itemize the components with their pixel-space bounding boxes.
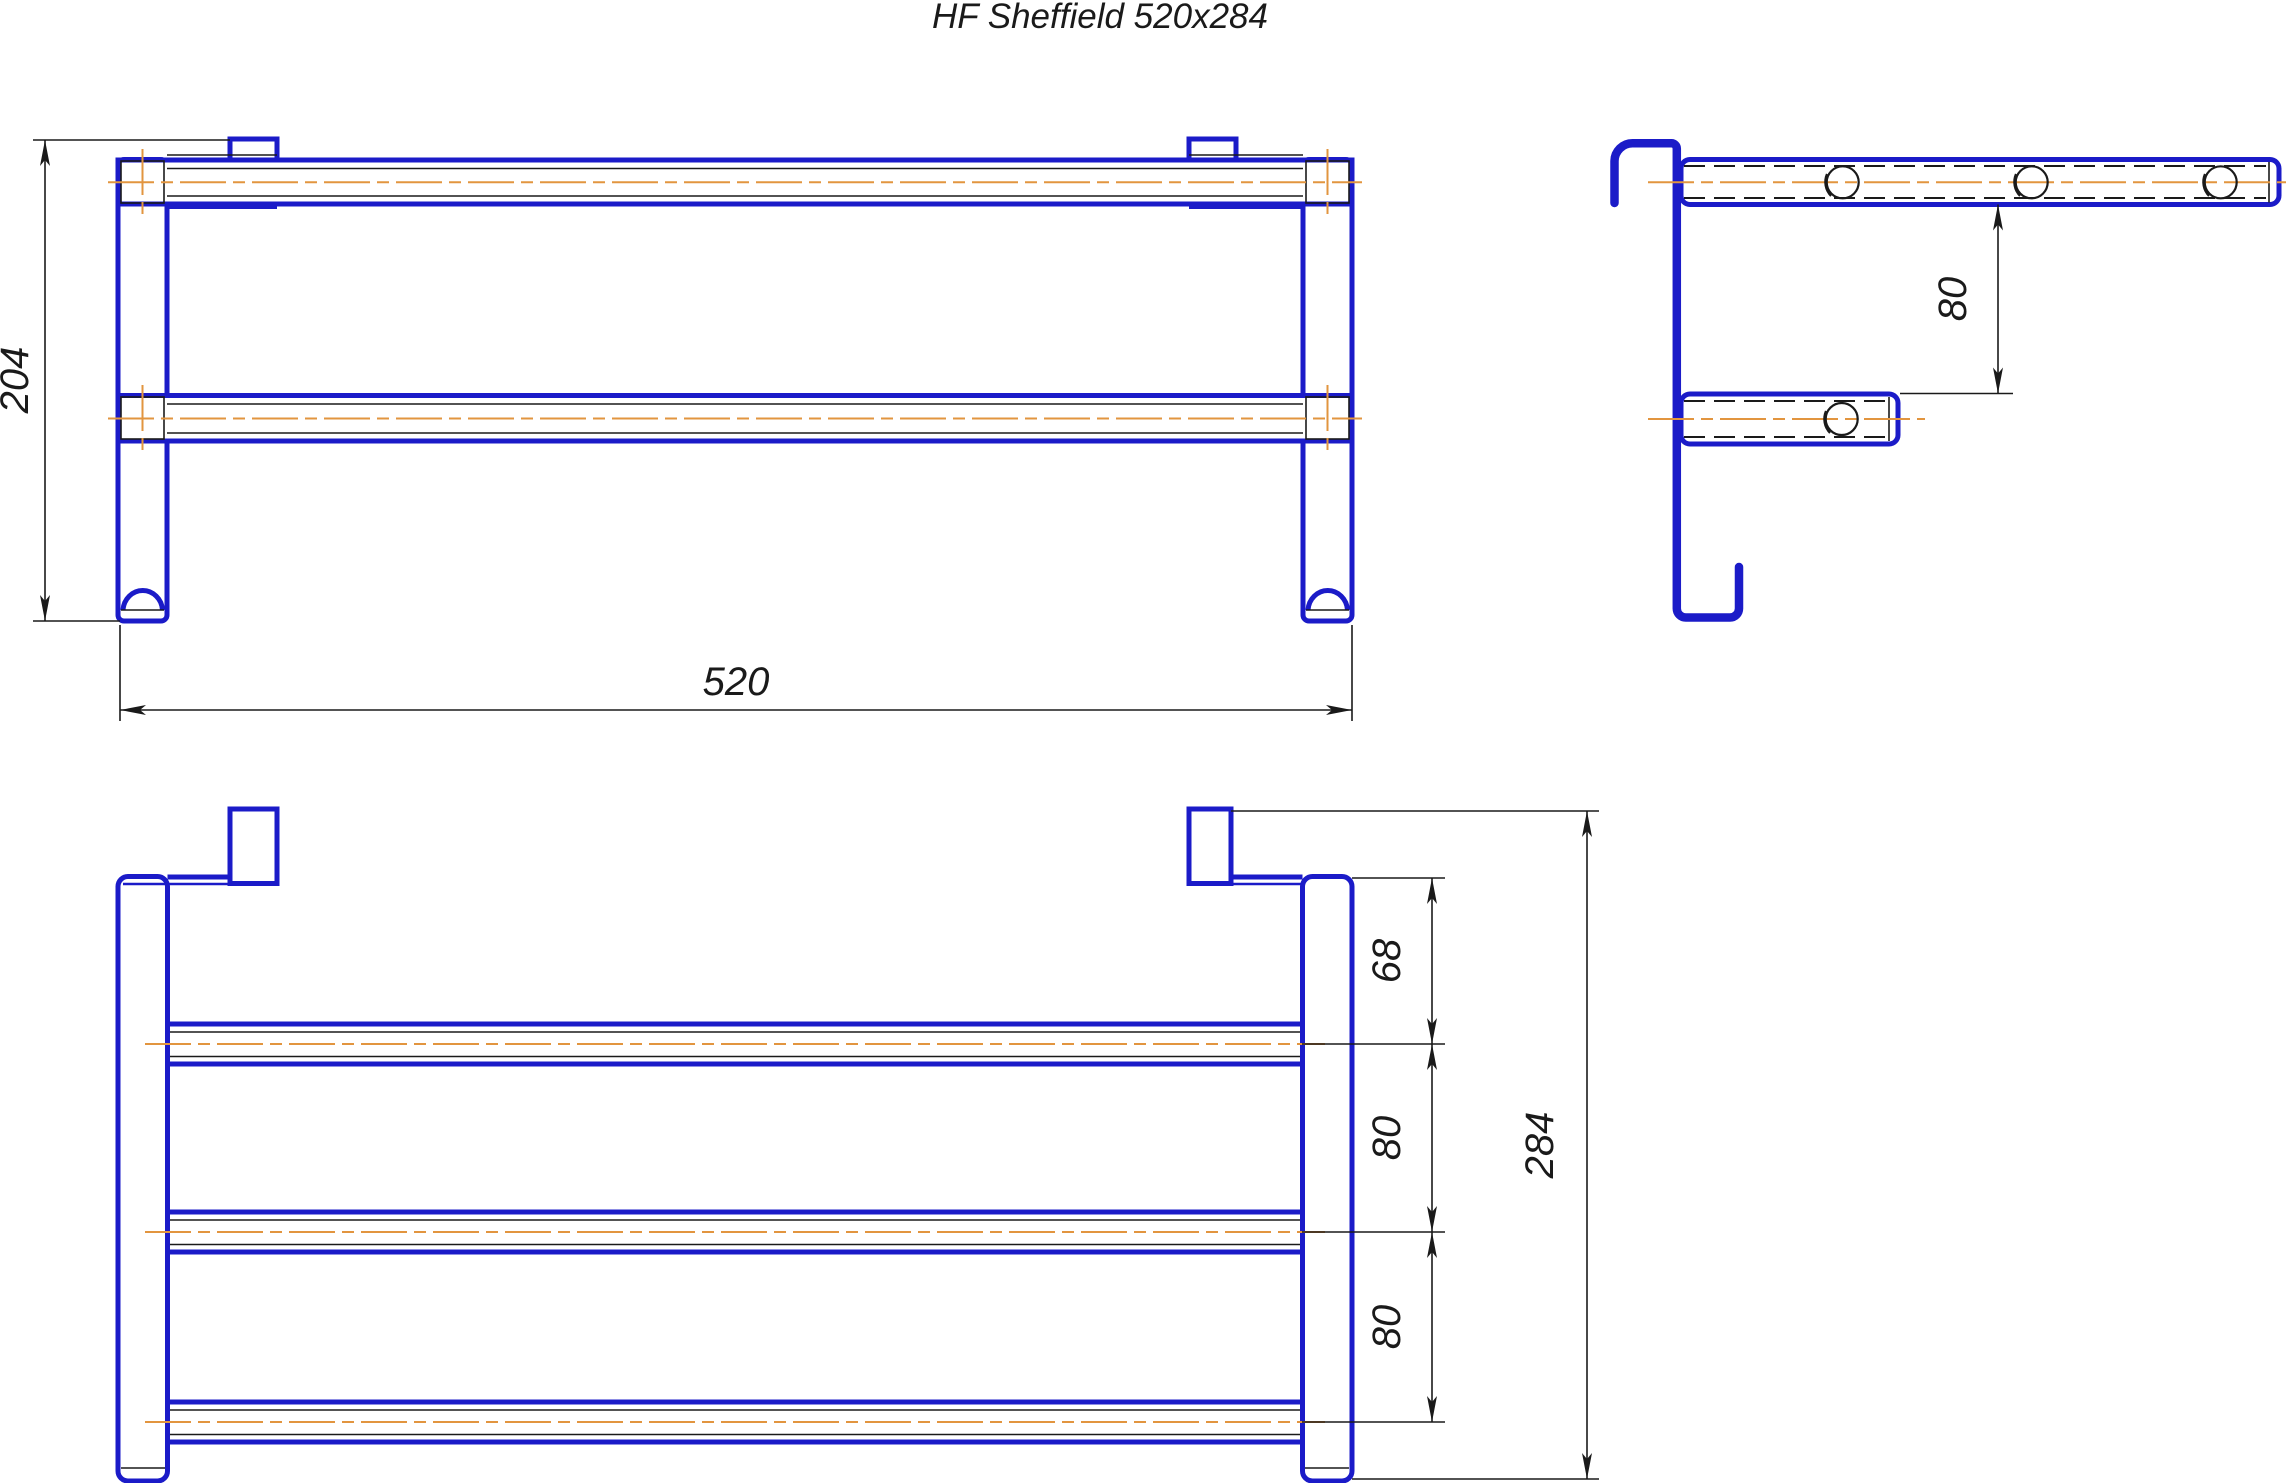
front-height-dim-text: 204 [0,347,37,415]
front-middle-bar [118,396,1352,442]
plan-right-hook-tab [1189,809,1231,884]
side-bar-gap-dimension: 80 [1900,205,2013,394]
front-view: 204 520 [0,139,1362,721]
plan-bar-spacing-2-dim-text: 80 [1365,1305,1409,1350]
drawing-canvas: HF Sheffield 520x284 [0,0,2286,1483]
front-width-dimension: 520 [120,625,1352,721]
plan-left-hook-tab [230,809,277,884]
side-view: 80 [1615,143,2286,617]
drawing-title: HF Sheffield 520x284 [932,0,1268,36]
front-top-bar [118,160,1352,204]
plan-view: 68 80 80 284 [118,809,1599,1481]
side-hook-plate-profile [1615,143,1740,617]
plan-right-rail [1303,877,1353,1482]
front-width-dim-text: 520 [703,660,770,704]
plan-front-gap-dim-text: 68 [1365,938,1409,983]
side-bar-gap-dim-text: 80 [1931,277,1975,322]
plan-left-rail [118,877,168,1482]
plan-depth-dimension: 284 [1231,811,1599,1479]
front-height-dimension: 204 [0,140,230,621]
plan-bar-spacing-1-dim-text: 80 [1365,1116,1409,1161]
plan-depth-dim-text: 284 [1518,1112,1562,1180]
technical-drawing-page: HF Sheffield 520x284 [0,0,2286,1483]
